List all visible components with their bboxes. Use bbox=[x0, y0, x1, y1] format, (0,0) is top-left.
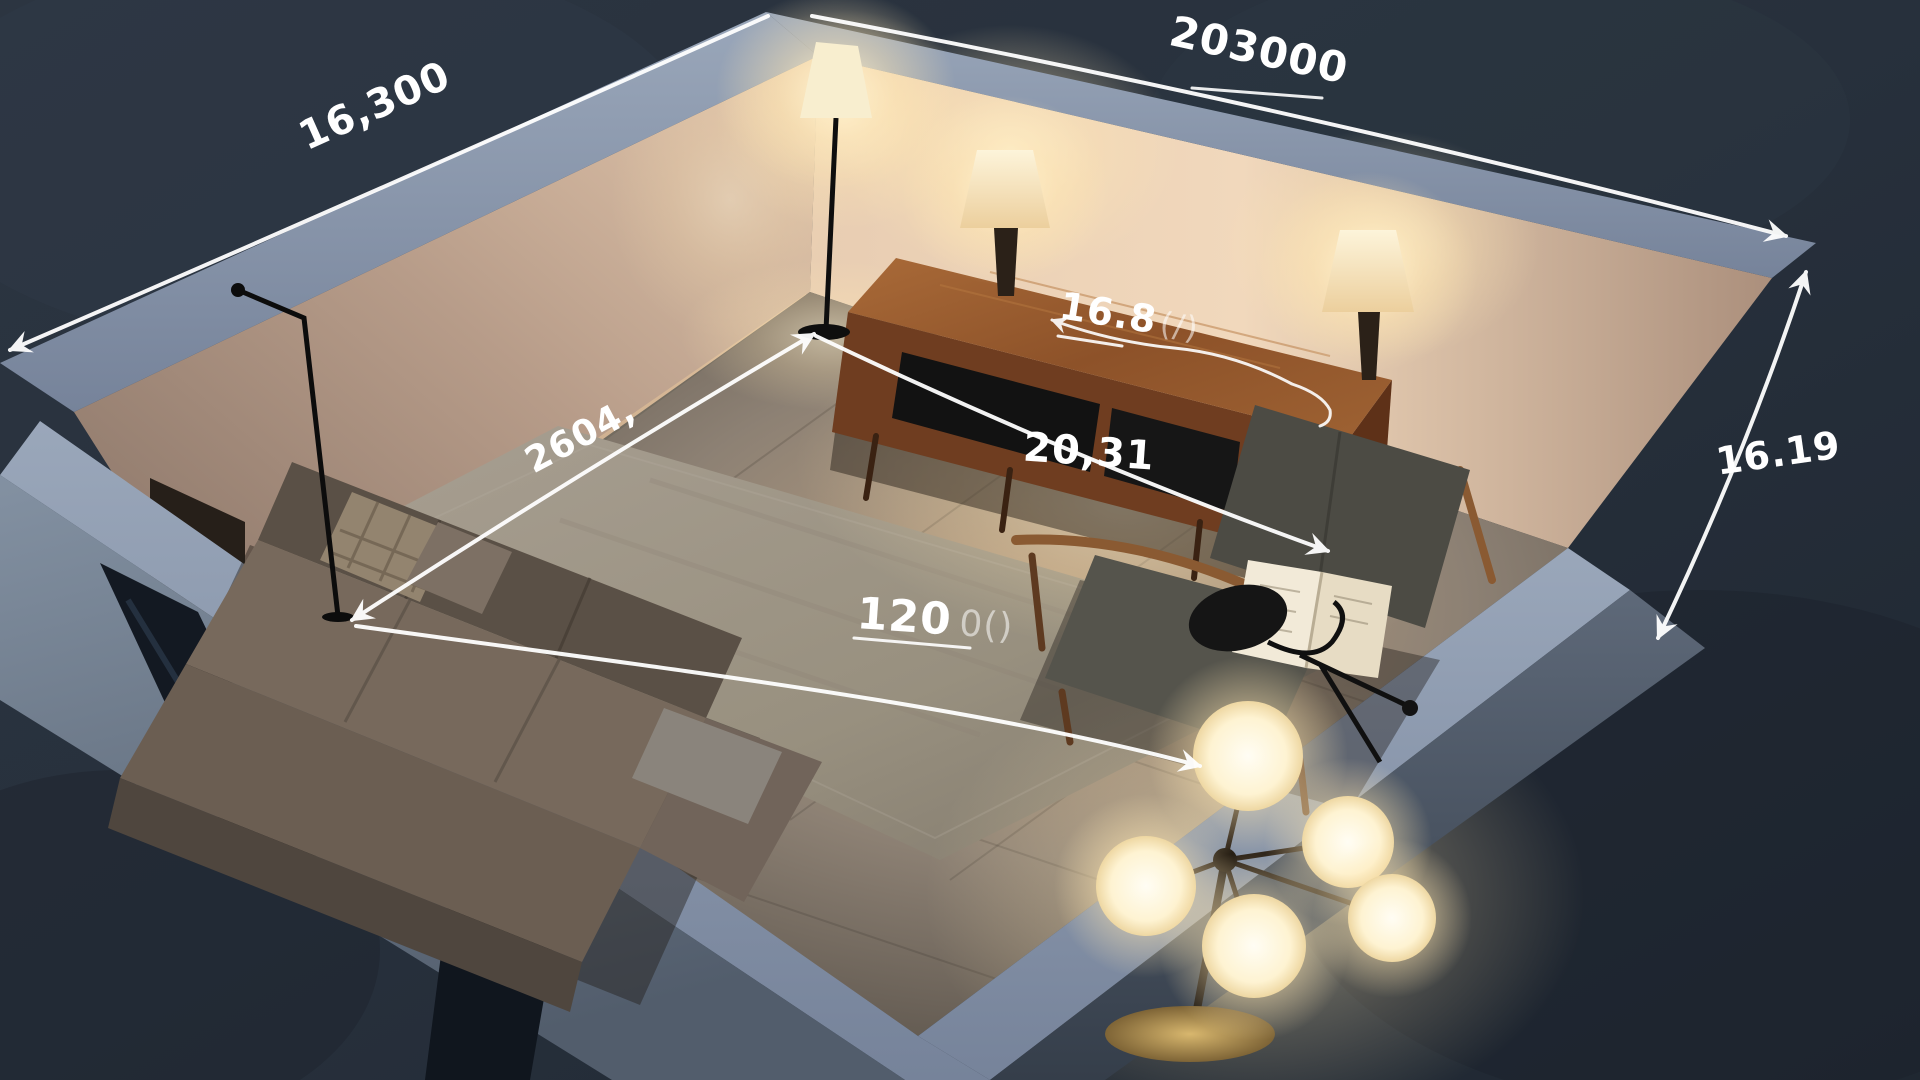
scene-canvas: 16,300 203000 16.19 2604, 20,31 16.8(/) bbox=[0, 0, 1920, 1080]
room-visualization: 16,300 203000 16.19 2604, 20,31 16.8(/) bbox=[0, 0, 1920, 1080]
dim-label-floor-diagonal: 20,31 bbox=[1022, 425, 1156, 480]
lamp-base bbox=[322, 612, 354, 622]
lamp-head bbox=[231, 283, 245, 297]
task-lamp-base bbox=[1402, 700, 1418, 716]
lamp-base bbox=[994, 228, 1018, 296]
